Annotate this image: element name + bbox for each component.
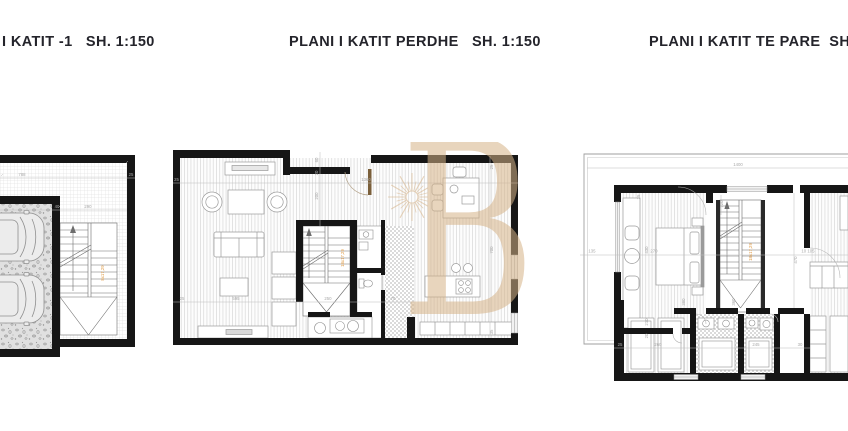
svg-text:25: 25 bbox=[174, 177, 179, 182]
svg-text:25: 25 bbox=[618, 342, 623, 347]
svg-text:70: 70 bbox=[391, 296, 396, 301]
stair-rise-label: 18x17,29 bbox=[340, 249, 345, 267]
dim-label: 25 bbox=[129, 172, 134, 177]
dim-label: 290 bbox=[84, 204, 92, 209]
basement-plan-drawing: 788 25 40 290 8x17,29 bbox=[0, 145, 150, 357]
closets-and-baths bbox=[628, 318, 773, 372]
svg-text:60: 60 bbox=[314, 157, 319, 162]
dim-label: 40 bbox=[55, 204, 60, 209]
pillow bbox=[690, 232, 699, 254]
wc-sink-counter bbox=[359, 230, 373, 239]
shelf-unit bbox=[272, 252, 296, 274]
cabinet bbox=[840, 196, 848, 230]
svg-text:210: 210 bbox=[644, 318, 649, 326]
svg-text:1360: 1360 bbox=[361, 177, 371, 182]
first-floor-plan-drawing: 1400 135 270 10 105 25 430 120 380 360 4… bbox=[578, 140, 848, 396]
first-floor-plan-title: PLANI I KATIT TE PARE SH. 1:150 bbox=[649, 34, 848, 50]
svg-text:25: 25 bbox=[636, 194, 641, 199]
bath-sink bbox=[746, 318, 758, 328]
dining-chair bbox=[432, 200, 443, 211]
svg-text:25: 25 bbox=[180, 296, 185, 301]
bathroom-floor bbox=[308, 317, 372, 338]
dining-chair bbox=[432, 184, 443, 195]
svg-text:135: 135 bbox=[588, 249, 596, 254]
svg-text:260: 260 bbox=[654, 342, 662, 347]
ground-floor-plan-drawing: 25 1360 60 20 200 25 595 250 70 25 700 3… bbox=[168, 140, 530, 355]
nightstand bbox=[692, 287, 703, 295]
wardrobe bbox=[658, 318, 684, 372]
armchair-right bbox=[267, 192, 287, 212]
tv-screen bbox=[232, 166, 268, 171]
side-table bbox=[228, 190, 264, 214]
svg-text:430: 430 bbox=[644, 246, 649, 254]
nightstand bbox=[692, 218, 703, 226]
basement-stairs bbox=[60, 223, 117, 335]
stair-rise-label: 8x17,29 bbox=[100, 265, 105, 281]
svg-text:20: 20 bbox=[644, 333, 649, 338]
stair-rise-label: 18x17,29 bbox=[748, 243, 753, 261]
ground-stairs bbox=[303, 226, 350, 316]
washing-machine bbox=[760, 318, 773, 330]
svg-text:200: 200 bbox=[314, 192, 319, 200]
svg-text:595: 595 bbox=[232, 296, 240, 301]
coffee-table bbox=[220, 278, 248, 296]
dim-label: 788 bbox=[18, 172, 26, 177]
wc-cabinet bbox=[359, 242, 368, 250]
svg-text:20: 20 bbox=[314, 170, 319, 175]
kitchen-counter bbox=[420, 322, 512, 335]
bar-stool bbox=[452, 264, 461, 273]
bar-stool bbox=[464, 264, 473, 273]
bed-headboard bbox=[701, 226, 704, 287]
shower bbox=[699, 338, 735, 370]
drawing-sheet: I KATIT -1 SH. 1:150 PLANI I KATIT PERDH… bbox=[0, 0, 848, 431]
dining-chair bbox=[453, 167, 466, 177]
svg-text:250: 250 bbox=[324, 296, 332, 301]
svg-text:10 105: 10 105 bbox=[801, 249, 815, 254]
svg-text:120: 120 bbox=[719, 200, 724, 208]
wardrobe bbox=[628, 318, 654, 372]
ground-plan-title: PLANI I KATIT PERDHE SH. 1:150 bbox=[289, 34, 541, 50]
svg-text:1400: 1400 bbox=[733, 162, 743, 167]
svg-text:35: 35 bbox=[489, 329, 494, 334]
svg-text:245: 245 bbox=[752, 342, 760, 347]
closet bbox=[830, 316, 848, 372]
first-floor-stairs bbox=[720, 200, 761, 312]
bath-sink bbox=[718, 318, 734, 329]
svg-text:30: 30 bbox=[798, 342, 803, 347]
basement-plan-title: I KATIT -1 SH. 1:150 bbox=[2, 34, 155, 50]
armchair-left bbox=[202, 192, 222, 212]
pillow bbox=[690, 262, 699, 283]
svg-text:470: 470 bbox=[793, 256, 798, 264]
svg-text:700: 700 bbox=[489, 246, 494, 254]
svg-text:360: 360 bbox=[731, 298, 736, 306]
svg-text:270: 270 bbox=[650, 249, 658, 254]
svg-text:380: 380 bbox=[681, 298, 686, 306]
svg-text:25: 25 bbox=[489, 164, 494, 169]
